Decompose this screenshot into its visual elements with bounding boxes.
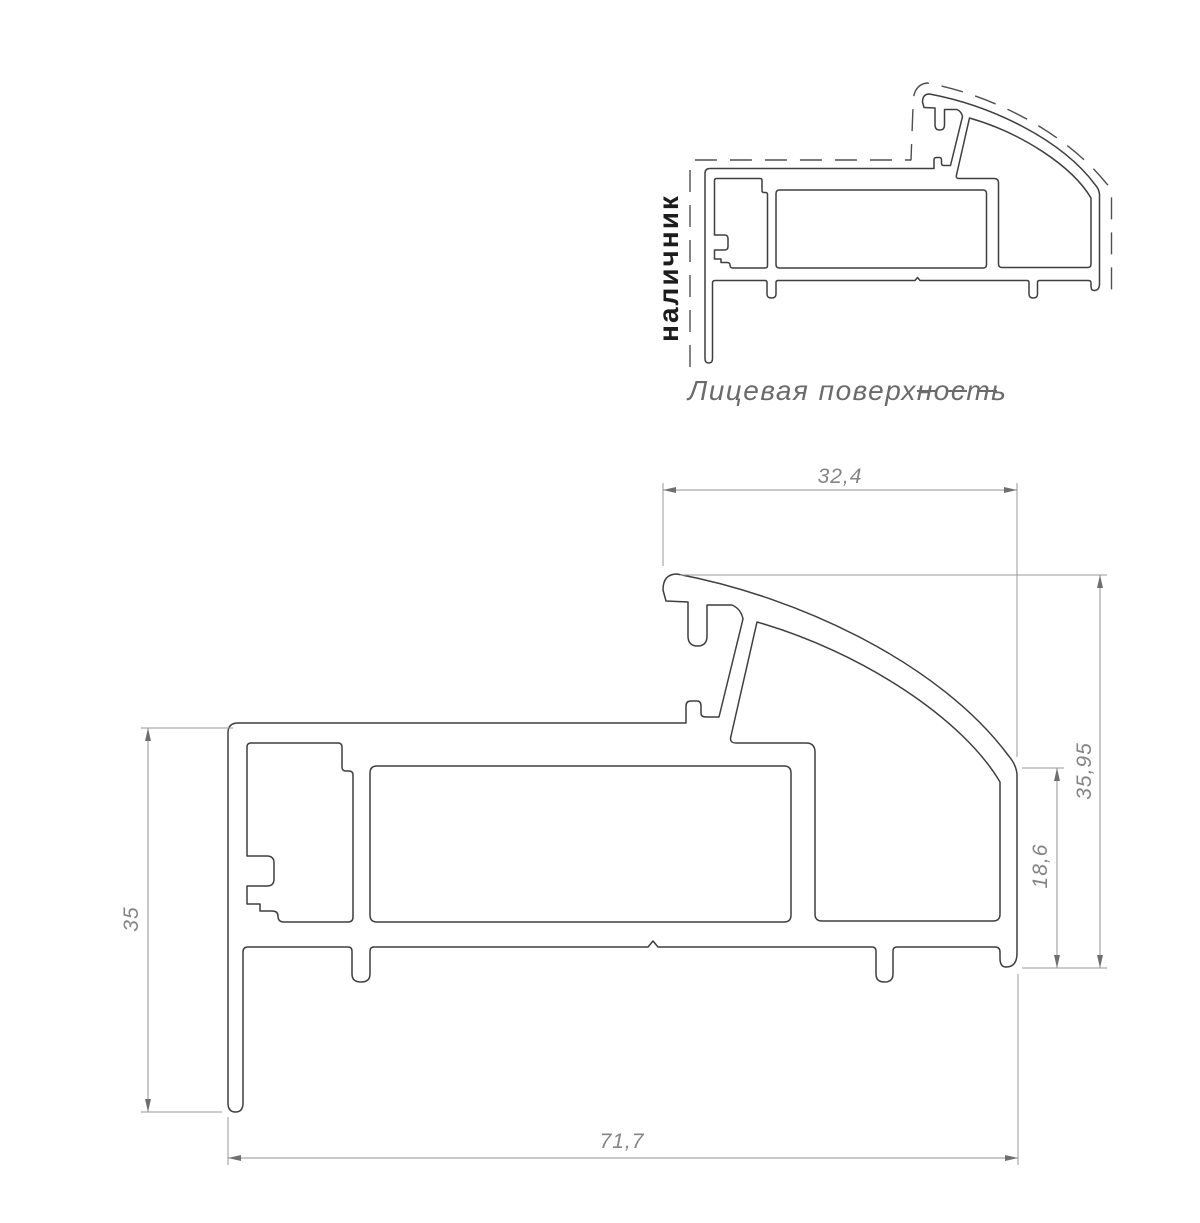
dim-value-left-height: 35: [120, 906, 143, 931]
dim-arrow-icon: [1097, 955, 1103, 968]
technical-drawing-page: наличник Лицевая поверхность 32,4 35,95 …: [0, 0, 1200, 1223]
dim-value-right-wall-height: 18,6: [1029, 844, 1052, 889]
dim-arrow-icon: [145, 1099, 151, 1112]
dim-value-overall-height: 35,95: [1073, 742, 1096, 800]
dim-arrow-icon: [1054, 955, 1060, 968]
face-surface-legend: Лицевая поверхность: [686, 375, 1007, 406]
dim-arrow-icon: [1004, 487, 1017, 493]
casing-label: наличник: [653, 194, 684, 342]
profile-drawing-canvas: наличник Лицевая поверхность 32,4 35,95 …: [0, 0, 1200, 1223]
dim-value-overall-width: 71,7: [600, 1130, 645, 1153]
dim-arrow-icon: [145, 728, 151, 741]
dim-arrow-icon: [1005, 1155, 1018, 1161]
dim-arrow-icon: [1054, 768, 1060, 781]
overview-profile-drawing: [690, 83, 1112, 367]
main-profile-drawing: [228, 574, 1017, 1112]
dim-overall-width: 71,7: [228, 974, 1018, 1165]
dim-right-wall-height: 18,6: [1022, 768, 1064, 968]
face-surface-dashed-outline: [690, 83, 1112, 367]
dim-arrow-icon: [228, 1155, 241, 1161]
dim-overall-height: 35,95: [680, 575, 1107, 968]
dim-left-height: 35: [120, 728, 233, 1112]
dim-arrow-icon: [1097, 575, 1103, 588]
dim-arrow-icon: [663, 487, 676, 493]
dim-value-top-width: 32,4: [818, 465, 863, 488]
dim-top-width: 32,4: [663, 465, 1017, 757]
